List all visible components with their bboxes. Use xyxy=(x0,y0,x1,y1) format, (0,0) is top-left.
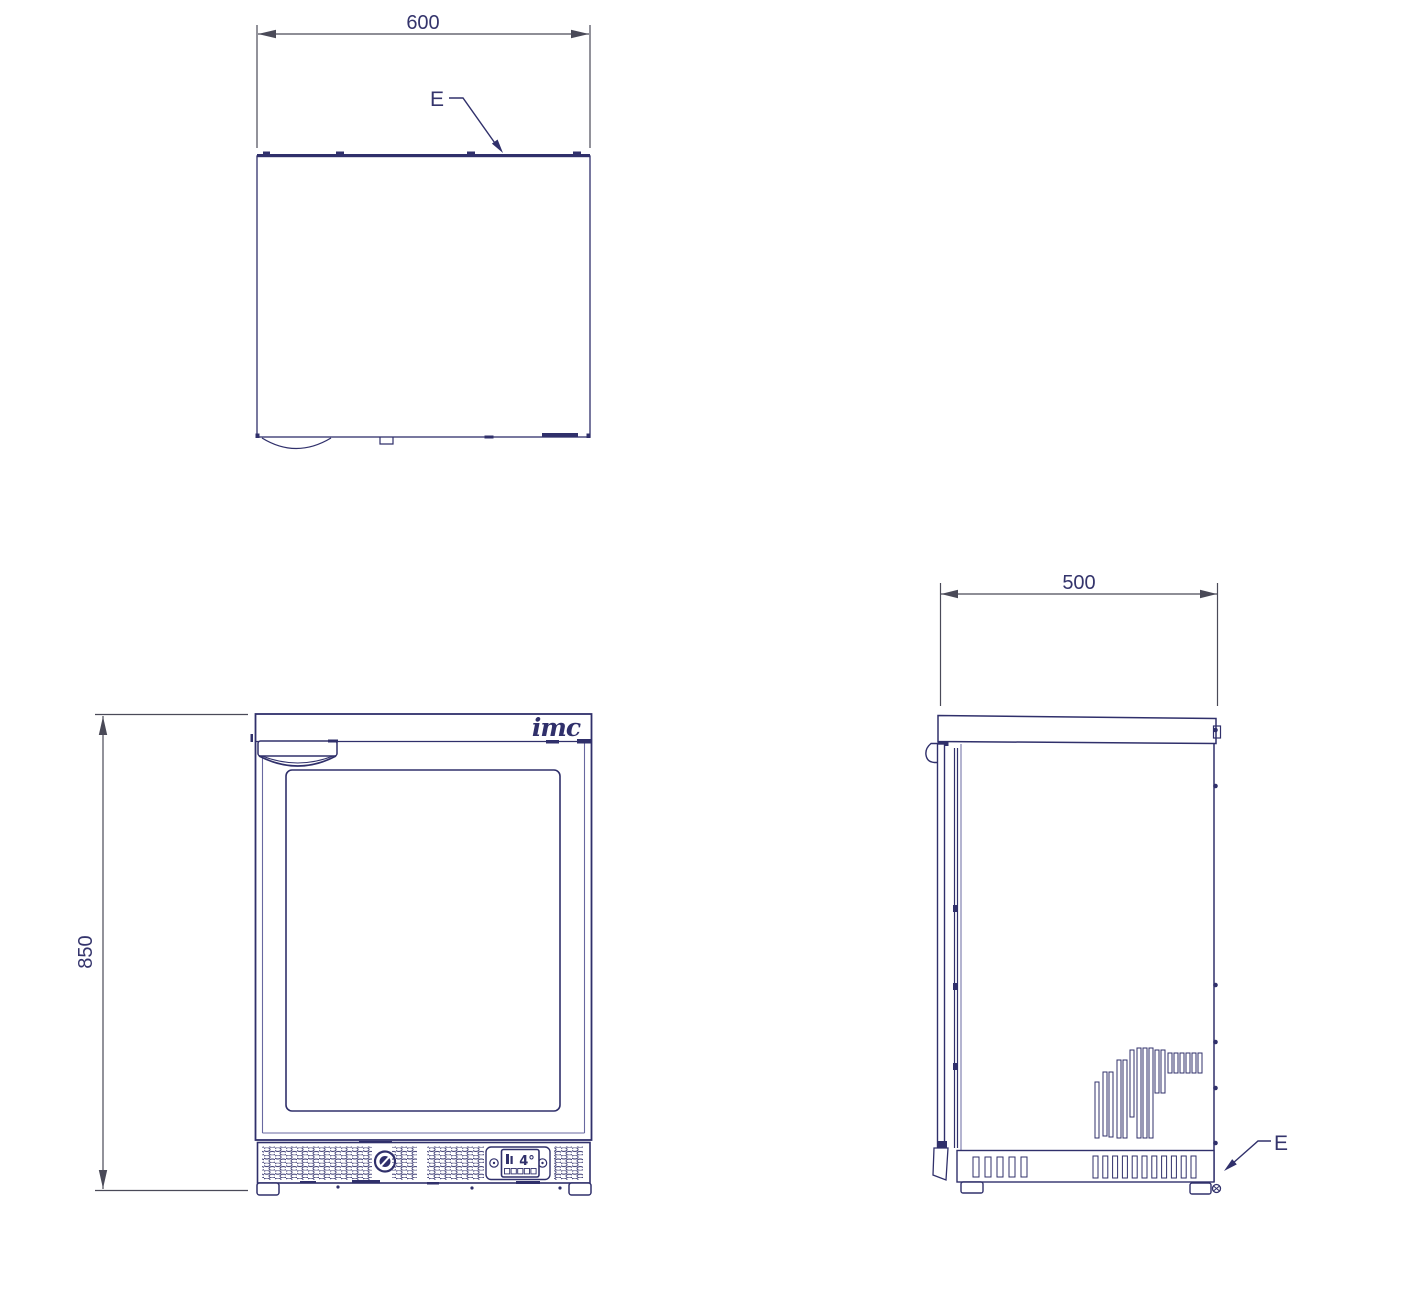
arrowhead-right xyxy=(571,30,589,38)
leader-line xyxy=(449,98,497,146)
foot-left xyxy=(257,1183,279,1195)
cabinet-top-face xyxy=(257,156,590,437)
technical-drawing: 600 E xyxy=(0,0,1413,1297)
drawing-sheet: 600 E xyxy=(0,0,1413,1297)
glass-panel xyxy=(286,770,560,1111)
front-view: 850 imc xyxy=(75,713,592,1195)
foot-front xyxy=(961,1182,983,1193)
fascia-corner-mark xyxy=(577,739,591,744)
kick-plate xyxy=(957,1151,1214,1183)
worktop-band xyxy=(938,716,1216,744)
dim-text-width: 600 xyxy=(406,12,439,34)
callout-label: E xyxy=(1274,1132,1288,1155)
arrowhead-right xyxy=(1200,590,1217,598)
rear-bracket xyxy=(380,438,393,445)
arrowhead-left xyxy=(941,590,958,598)
detail-callout-e-side: E xyxy=(1224,1132,1288,1171)
dim-text-depth: 500 xyxy=(1062,572,1095,594)
foot-rear xyxy=(1190,1183,1211,1194)
door-bottom-joint xyxy=(937,1141,947,1148)
front-edge-thick-line xyxy=(257,154,590,157)
arrowhead-left xyxy=(258,30,276,38)
cabinet-front: imc xyxy=(251,713,592,1195)
side-view: 500 xyxy=(926,572,1288,1194)
handle-recess xyxy=(258,741,337,756)
top-view: 600 E xyxy=(256,12,591,449)
temperature-display-assembly: 4° xyxy=(486,1147,550,1180)
temperature-value: 4° xyxy=(519,1154,535,1169)
arrowhead-top xyxy=(99,717,107,736)
arrowhead-bottom xyxy=(99,1170,107,1189)
door-slab xyxy=(938,744,945,1148)
rear-tick xyxy=(485,436,494,439)
cabinet-side xyxy=(926,716,1221,1195)
foot-right xyxy=(569,1183,591,1195)
dim-text-height: 850 xyxy=(75,935,97,968)
door-bottom-profile xyxy=(933,1148,948,1180)
condenser-vent-slots xyxy=(1095,1048,1202,1138)
dimension-width-600: 600 xyxy=(257,12,590,148)
brand-logo: imc xyxy=(532,713,581,742)
dimension-depth-500: 500 xyxy=(941,572,1218,706)
callout-label: E xyxy=(430,88,444,111)
logo-underline xyxy=(546,740,559,744)
rear-thick-segment xyxy=(542,433,578,438)
rear-foot-bolt xyxy=(1213,1185,1221,1193)
rear-arc-detail xyxy=(262,438,331,449)
detail-callout-e-top: E xyxy=(430,88,503,153)
dimension-height-850: 850 xyxy=(75,715,248,1191)
thermometer-icon xyxy=(506,1154,509,1164)
cabinet-plan-outline xyxy=(256,152,591,449)
